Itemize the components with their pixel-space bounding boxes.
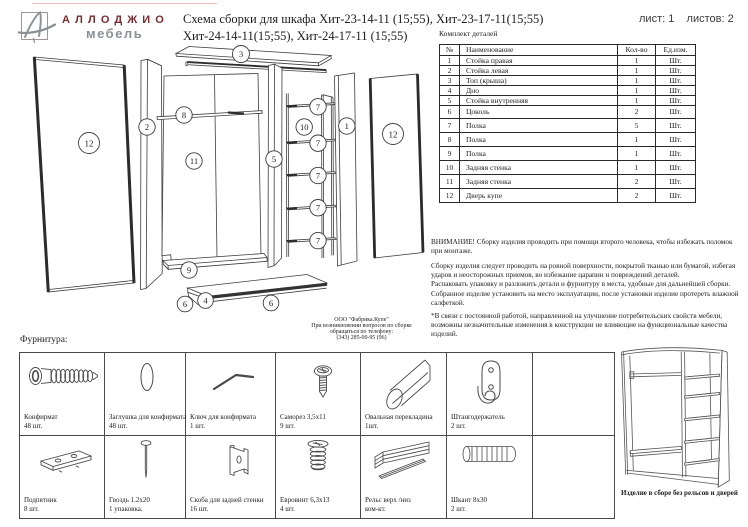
svg-text:6: 6 [183, 299, 187, 309]
svg-text:10: 10 [300, 122, 309, 132]
svg-text:3: 3 [239, 49, 243, 59]
svg-text:8: 8 [182, 110, 186, 120]
svg-text:7: 7 [316, 171, 320, 181]
svg-text:7: 7 [316, 236, 320, 246]
svg-text:7: 7 [316, 102, 320, 112]
svg-text:11: 11 [190, 156, 198, 166]
svg-text:1: 1 [345, 121, 349, 131]
svg-text:9: 9 [187, 265, 191, 275]
svg-text:12: 12 [389, 129, 398, 139]
svg-text:6: 6 [269, 298, 273, 308]
svg-text:7: 7 [316, 203, 320, 213]
svg-text:12: 12 [85, 138, 94, 148]
svg-text:7: 7 [316, 138, 320, 148]
svg-text:2: 2 [145, 122, 149, 132]
svg-text:5: 5 [272, 154, 276, 164]
